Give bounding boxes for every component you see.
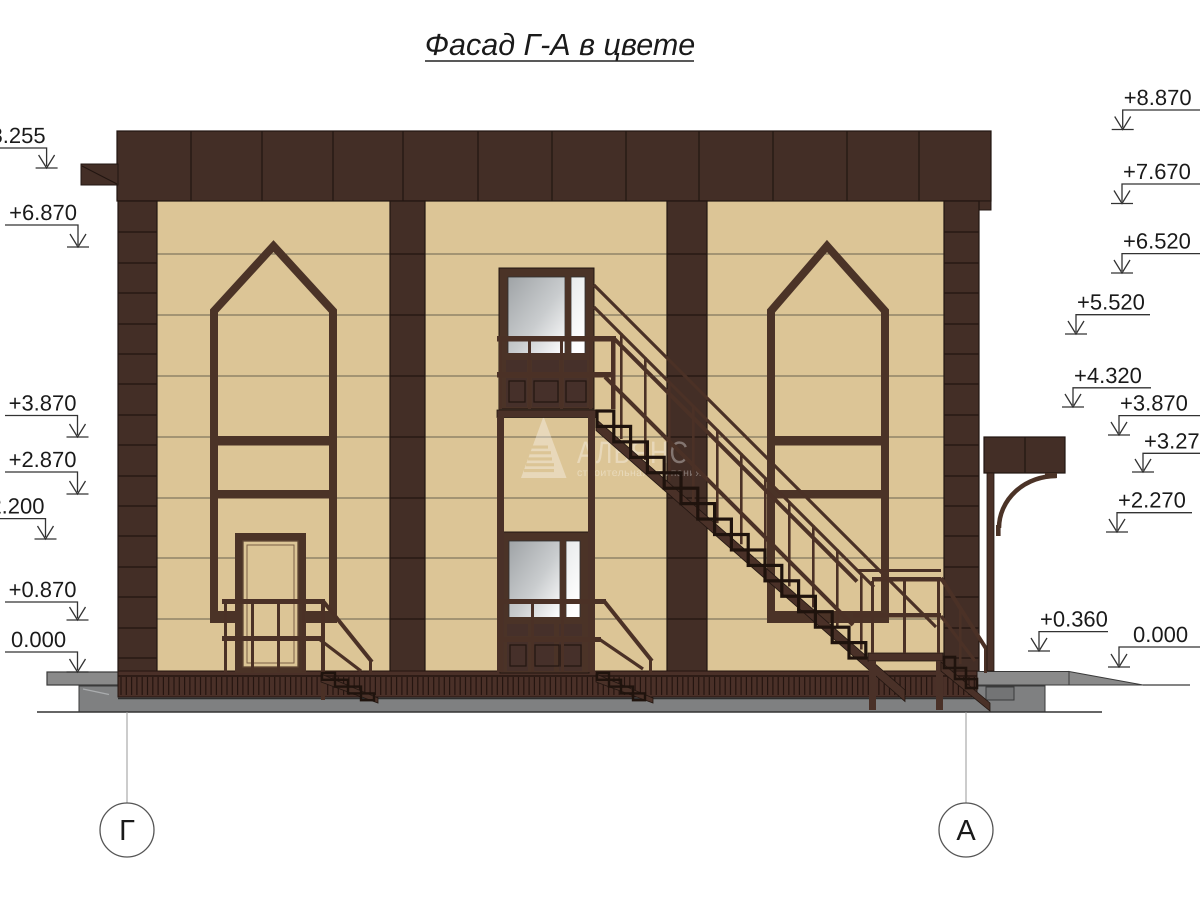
svg-text:+2.870: +2.870 [9,447,77,472]
svg-text:0.000: 0.000 [1133,622,1188,647]
svg-text:+6.870: +6.870 [9,200,77,225]
svg-text:+8.255: +8.255 [0,123,46,148]
svg-text:+3.870: +3.870 [9,391,77,416]
svg-text:Фасад Г-А в цвете: Фасад Г-А в цвете [425,28,695,62]
svg-text:+3.870: +3.870 [1120,391,1188,416]
svg-text:+3.27: +3.27 [1144,428,1200,453]
svg-text:+4.320: +4.320 [1074,363,1142,388]
svg-text:Г: Г [119,815,135,847]
svg-text:+6.520: +6.520 [1123,229,1191,254]
svg-text:+2.200: +2.200 [0,494,45,519]
svg-text:+0.360: +0.360 [1040,607,1108,632]
svg-text:+0.870: +0.870 [9,577,77,602]
svg-text:+8.870: +8.870 [1124,85,1192,110]
svg-text:А: А [956,815,976,847]
svg-text:0.000: 0.000 [11,627,66,652]
svg-text:+5.520: +5.520 [1077,290,1145,315]
svg-text:+2.270: +2.270 [1118,488,1186,513]
svg-text:+7.670: +7.670 [1123,159,1191,184]
